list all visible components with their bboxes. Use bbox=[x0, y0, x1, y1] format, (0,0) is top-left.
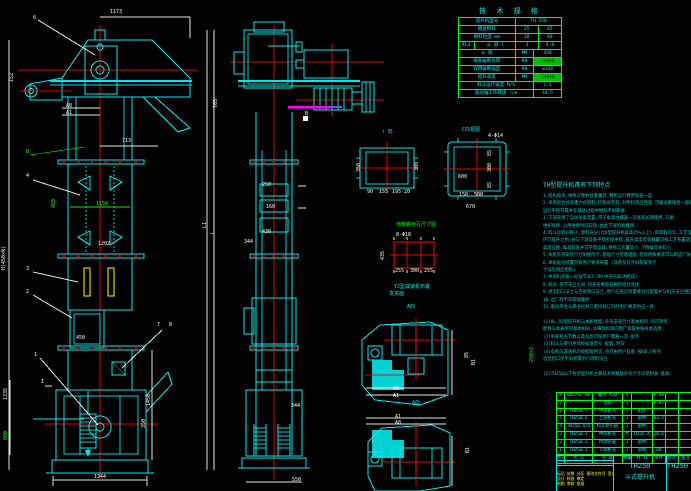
parts-table-cell bbox=[665, 393, 678, 400]
dimension-label: 430 bbox=[262, 230, 271, 235]
parts-table-cell bbox=[665, 409, 678, 416]
notes-line: 5.本机外形安装尺寸如图所示,基础尺寸见基础图,若有特殊要求可与制造厂协商订货 bbox=[543, 252, 691, 259]
parts-table-cell bbox=[678, 432, 691, 439]
dimension-label: B1 bbox=[466, 447, 471, 453]
parts-table-row: 1TH250.1下部机壳1部件88 bbox=[557, 447, 691, 455]
parts-table-cell: 7 bbox=[557, 401, 564, 408]
parts-table-cell: 下部机壳 bbox=[592, 448, 622, 455]
parts-table-cell: 1 bbox=[622, 401, 631, 408]
notes-line: 7.中部机壳每一标准节长2.5M(中部壳高3M组成) bbox=[543, 274, 691, 281]
dimension-label: 550 bbox=[292, 478, 301, 483]
title-block-revisions: 标记 处数 分区 更改文件号 签名 日期 设计 校核 审定 制图 审核 批准 bbox=[557, 456, 614, 491]
spec-table-cell: 驱动轴工作转速 r/m bbox=[459, 90, 533, 97]
dimension-label: 4-Φ14 bbox=[488, 134, 503, 139]
dimension-label: 765 bbox=[214, 99, 219, 108]
notes-block: TH型提升机具有下列特点 1.结构简单,维修方便并且重量轻,整机运行费用较低一些… bbox=[543, 180, 691, 378]
dimension-label: 344 bbox=[244, 240, 253, 245]
spec-table-cell: 450 bbox=[533, 50, 561, 57]
spec-table-cell: 提升高度 bbox=[459, 74, 515, 81]
parts-table-cell: 垫圈 bbox=[592, 401, 622, 408]
dimension-label: 344 bbox=[291, 404, 300, 409]
parts-table-cell bbox=[631, 401, 652, 408]
dimension-label: 300 bbox=[415, 162, 420, 171]
parts-table-cell: 中部机壳 bbox=[592, 409, 622, 416]
spec-table-cell: 链条破断负荷 bbox=[459, 58, 515, 65]
parts-table-row: 5TH250.6上部机壳1部件83.5 bbox=[557, 415, 691, 423]
parts-table-cell: TH250.3 bbox=[564, 432, 592, 439]
parts-table-row: 6TH250.7中部机壳1组焊 bbox=[557, 408, 691, 416]
dimension-label: 7 bbox=[157, 323, 160, 328]
spec-table-row: 许用破断强度KN≥320 bbox=[459, 65, 561, 73]
spec-table-cell: MM bbox=[515, 74, 534, 81]
parts-table-cell: 1 bbox=[622, 448, 631, 455]
dimension-label: 8 bbox=[169, 323, 172, 328]
parts-table-cell bbox=[631, 393, 652, 400]
spec-table-cell: ≥320 bbox=[533, 66, 561, 73]
parts-table-cell: 5 bbox=[557, 416, 564, 423]
spec-table-cell: 1.2 bbox=[533, 82, 561, 89]
parts-table-cell: 上部机壳 bbox=[592, 416, 622, 423]
parts-list-table: 8GB5782-86螺栓 M2040.087垫圈10.056TH250.7中部机… bbox=[556, 392, 691, 464]
parts-table-cell: 1 bbox=[557, 448, 564, 455]
spec-table-cell: 斗 容 l bbox=[474, 42, 515, 49]
parts-table-cell: 88 bbox=[652, 448, 665, 455]
dimension-label: 155 bbox=[379, 190, 388, 195]
drawing-model: TH250 bbox=[614, 462, 666, 470]
parts-table-cell bbox=[678, 416, 691, 423]
parts-table-cell: Q235-A bbox=[631, 432, 652, 439]
parts-table-cell: TH250.2 bbox=[564, 440, 592, 447]
spec-table-cell: 物料粒度 mm bbox=[459, 34, 515, 41]
parts-table-cell: TH250.6 bbox=[564, 416, 592, 423]
dimension-label: 600 bbox=[458, 175, 467, 180]
dimension-label: 255 bbox=[395, 269, 404, 274]
parts-table-cell bbox=[665, 416, 678, 423]
parts-table-cell: 0.05 bbox=[652, 401, 665, 408]
spec-table-row: 驱动轴工作转速 r/m44.5 bbox=[459, 89, 561, 97]
cad-drawing-screenshot: 技 术 规 格 提升机型号TH 250输送物料2545物料粒度 mm3040料斗… bbox=[0, 0, 691, 491]
dimension-label: 1202 bbox=[98, 242, 110, 247]
parts-table-cell bbox=[665, 440, 678, 447]
notes-line: (1)HL,DZ型提升机与本机性能,外形安装尺寸基本相同 均可参考, bbox=[543, 319, 691, 326]
notes-line: 寸详见相应图纸) bbox=[543, 267, 691, 274]
dimension-label: 350 bbox=[142, 419, 147, 428]
dimension-label: A8 bbox=[393, 387, 399, 392]
spec-table-cell: 25000 bbox=[533, 58, 561, 65]
parts-table-cell bbox=[678, 440, 691, 447]
parts-table-cell: 0.08 bbox=[652, 393, 665, 400]
spec-table-cell: 25 bbox=[515, 26, 538, 33]
dimension-label: 85 bbox=[488, 150, 493, 156]
parts-table-cell: 部件 bbox=[631, 424, 652, 431]
parts-table-cell bbox=[652, 409, 665, 416]
side-casing bbox=[244, 112, 298, 455]
notes-line: 3.下部采用了自动张紧装置,带子张紧由螺旋一次张紧长期使用,方便 bbox=[543, 215, 691, 222]
parts-table-cell: 部件 bbox=[631, 448, 652, 455]
dimension-label: 1173 bbox=[110, 10, 122, 15]
parts-table-cell: 4 bbox=[622, 393, 631, 400]
parts-table-cell: TH250.1 bbox=[564, 448, 592, 455]
spec-table-title: 技 术 规 格 bbox=[458, 6, 562, 16]
notes-line: 11.驱动平台与梯子栏杆二者均按订货时用户要求供应一并 bbox=[543, 304, 691, 311]
notes-line: 2.采用混合式或重力式卸料,挖取式装料,对物料适应性强 可输送磨琢性一般的物料, bbox=[543, 200, 691, 207]
side-head-drive bbox=[234, 22, 374, 112]
dimension-label: 4 bbox=[26, 174, 29, 179]
dimension-label: B1 bbox=[472, 359, 477, 365]
dimension-label: 1450 bbox=[147, 394, 152, 406]
parts-table-cell bbox=[665, 401, 678, 408]
dimension-label: 2 bbox=[26, 290, 29, 295]
parts-table-cell bbox=[564, 401, 592, 408]
dimension-label: 20 bbox=[404, 190, 410, 195]
spec-table-row: 斗 距MM450 bbox=[459, 49, 561, 57]
dimension-label: 713 bbox=[122, 139, 131, 144]
spec-table-cell: 40 bbox=[538, 34, 561, 41]
parts-table-cell: M bbox=[622, 432, 631, 439]
dimension-label: 发货面 bbox=[389, 292, 404, 297]
dimension-label: A8 bbox=[395, 421, 401, 426]
dimension-label: 500 bbox=[474, 193, 483, 198]
dimension-label: C向视图 bbox=[462, 128, 480, 133]
parts-table-cell: 3 bbox=[557, 432, 564, 439]
dimension-label: 1335 bbox=[4, 388, 9, 400]
dimension-label: B bbox=[26, 150, 29, 155]
spec-table-cell: TH 250 bbox=[515, 18, 561, 25]
detail-section-I bbox=[356, 142, 418, 194]
spec-table-row: 料斗运行速度 M/S1.2 bbox=[459, 81, 561, 89]
parts-table-cell: TH250.7 bbox=[564, 409, 592, 416]
spec-table-row: 提升机型号TH 250 bbox=[459, 18, 561, 25]
title-block-code: TH250 bbox=[667, 456, 691, 491]
title-block-grid bbox=[557, 456, 613, 470]
parts-table-cell: 料斗牵引链 bbox=[592, 424, 622, 431]
spec-table-row: 提升高度MM14040 bbox=[459, 73, 561, 81]
parts-table-cell bbox=[665, 448, 678, 455]
parts-table-cell: 1 bbox=[622, 409, 631, 416]
detail-section-C bbox=[444, 138, 510, 200]
parts-table-row: 3TH250.3中间机壳MQ235-A20.6 bbox=[557, 431, 691, 439]
parts-table-cell bbox=[678, 401, 691, 408]
parts-table-row: 7垫圈10.05 bbox=[557, 400, 691, 408]
parts-table-cell bbox=[665, 432, 678, 439]
parts-table-cell: 部件 bbox=[631, 440, 652, 447]
dimension-label: 300 bbox=[410, 269, 419, 274]
drawing-code: TH250 bbox=[667, 462, 691, 470]
dimension-label: 450 bbox=[52, 199, 57, 208]
dimension-label: 1344 bbox=[94, 475, 106, 480]
spec-table-cell: 料斗运行速度 M/S bbox=[459, 82, 533, 89]
dimension-label: 1 bbox=[34, 353, 37, 358]
sign-row-2: 制图 审核 批准 bbox=[557, 481, 613, 486]
dimension-label: 250 bbox=[262, 183, 271, 188]
dimension-label: L bbox=[211, 231, 216, 234]
dimension-label: H(450×N) bbox=[2, 246, 7, 270]
dimension-label: 地脚螺栓孔尺寸图 bbox=[396, 223, 436, 228]
dimension-label: 350 bbox=[357, 163, 362, 172]
dimension-label: L1 bbox=[203, 222, 208, 228]
spec-table-cell: 4.8 bbox=[538, 42, 561, 49]
spec-table-cell: 44.5 bbox=[533, 90, 561, 97]
notes-line: 8.机壳 各节法兰之间 均夹有橡胶石棉垫密封连接 bbox=[543, 282, 691, 289]
notes-line bbox=[543, 312, 691, 319]
notes-line: 10.出厂时不带基础螺栓 bbox=[543, 297, 691, 304]
spec-table-cell: 输送物料 bbox=[459, 26, 515, 33]
spec-table-row: 链条破断负荷KN25000 bbox=[459, 57, 561, 65]
notes-line: 高适应性,噪音较低并可平稳运转,维修工作量较小 下降噪音亦较小 bbox=[543, 245, 691, 252]
parts-table-cell: 1 bbox=[622, 416, 631, 423]
spec-table-cell: 14040 bbox=[533, 74, 561, 81]
parts-table-cell: 6 bbox=[557, 409, 564, 416]
dimension-label: 300 bbox=[488, 163, 493, 172]
parts-table-cell: 1 bbox=[622, 440, 631, 447]
spec-table-cell: 许用破断强度 bbox=[459, 66, 515, 73]
parts-table-row: 2TH250.2传动装置1部件 bbox=[557, 439, 691, 447]
dimension-label: A1 bbox=[393, 394, 399, 399]
dimension-label: 800 bbox=[4, 431, 9, 440]
dimension-label: 450 bbox=[76, 336, 85, 341]
parts-table-row: 4TH250.4/5料斗牵引链1部件 bbox=[557, 423, 691, 431]
parts-table-cell: 螺栓 M20 bbox=[592, 393, 622, 400]
notes-header: TH型提升机具有下列特点 bbox=[543, 180, 691, 189]
notes-line: 1.结构简单,维修方便并且重量轻,整机运行费用较低一些 bbox=[543, 193, 691, 200]
dimension-label: 85 bbox=[465, 352, 470, 358]
notes-line: (2)中部机壳节数以及总高可按用户需要一次-配齐 bbox=[543, 334, 691, 341]
dimension-label: A1 bbox=[66, 111, 72, 116]
dimension-label: 435 bbox=[381, 251, 386, 260]
spec-table: 技 术 规 格 提升机型号TH 250输送物料2545物料粒度 mm3040料斗… bbox=[458, 6, 562, 98]
notes-line: 9.进出料口法兰与连接管口法兰,用户应按实际需要另行配置并与机壳法兰相匹配连接 bbox=[543, 289, 691, 296]
spec-table-grid: 提升机型号TH 250输送物料2545物料粒度 mm3040料斗斗 容 l34.… bbox=[458, 17, 562, 98]
dimension-label: 8-Φ18 bbox=[396, 233, 411, 238]
notes-line: 环节提升之用,并与下游设备平稳衔接中转,提升高度及装载量可按工艺布置选择有较 bbox=[543, 237, 691, 244]
spec-table-row: 料斗斗 容 l34.8 bbox=[459, 41, 561, 49]
parts-table-cell bbox=[678, 409, 691, 416]
dimension-label: 150 bbox=[459, 193, 468, 198]
parts-table-cell: 1 bbox=[622, 424, 631, 431]
parts-table-cell bbox=[652, 440, 665, 447]
spec-table-cell: 3 bbox=[515, 42, 538, 49]
spec-table-cell: 料斗 bbox=[459, 42, 474, 49]
head-assembly bbox=[20, 30, 192, 132]
dimension-label: A向 bbox=[412, 401, 420, 406]
dimension-label: 670 bbox=[466, 205, 475, 210]
notes-line: (3)料斗与牵引件均按标准型号 配套 供货 bbox=[543, 341, 691, 348]
dimension-label: B bbox=[305, 112, 308, 117]
dimension-label: 6 bbox=[33, 16, 36, 21]
dimension-label: Ⅰ 向 bbox=[383, 130, 393, 135]
flange-bolt-marks bbox=[62, 160, 296, 350]
notes-line: 运行平稳可靠并在输送过程中物料不易撒漏 bbox=[543, 208, 691, 215]
notes-lines: 1.结构简单,维修方便并且重量轻,整机运行费用较低一些2.采用混合式或重力式卸料… bbox=[543, 193, 691, 378]
parts-table-cell: TH250.4/5 bbox=[564, 424, 592, 431]
notes-line: (5)TH250以下各型提升机主要技术参数及外形尺寸详见附表 备索. bbox=[543, 371, 691, 378]
parts-table-cell: 传动装置 bbox=[592, 440, 622, 447]
spec-table-row: 输送物料2545 bbox=[459, 25, 561, 33]
dimension-label: 85 bbox=[488, 182, 493, 188]
title-block: 标记 处数 分区 更改文件号 签名 日期 设计 校核 审定 制图 审核 批准 T… bbox=[556, 455, 691, 491]
detail-drive-platform-A bbox=[362, 318, 455, 405]
spec-table-cell: KN bbox=[515, 58, 534, 65]
notes-line: 配件与本表所列基本相同,详细资料请向我厂索取并按样本选用: bbox=[543, 326, 691, 333]
spec-table-cell: MM bbox=[515, 50, 534, 57]
dimension-label: A8 bbox=[66, 104, 72, 109]
detail-drive-platform-B bbox=[366, 418, 455, 491]
parts-table-cell: 8 bbox=[557, 393, 564, 400]
dimension-label: A向 bbox=[407, 305, 415, 310]
parts-table-cell: GB5782-86 bbox=[564, 393, 592, 400]
drawing-product-name: 斗式提升机 bbox=[614, 472, 666, 481]
parts-table-cell bbox=[678, 424, 691, 431]
notes-line: 维护保养,占用维修时间较短,由此节省检修费用 bbox=[543, 223, 691, 230]
notes-line: 4.料斗运转间隙小,卸料充分(比D型提升机提高25%以上),装卸料均匀,工艺流程… bbox=[543, 230, 691, 237]
parts-table-cell bbox=[678, 393, 691, 400]
notes-line: 6.本机驱动装置可按用户要求布置 (其余型号外形及安装尺 bbox=[543, 260, 691, 267]
parts-table-cell: 83.5 bbox=[652, 416, 665, 423]
notes-line: (4)电机与减速机均按配套供货,也可由用户自备 按GB,Y系列 bbox=[543, 349, 691, 356]
notes-line: 选型后口径不同者需另行改制法兰 bbox=[543, 356, 691, 363]
spec-table-cell: 30 bbox=[515, 34, 538, 41]
side-view bbox=[207, 22, 384, 482]
dimension-label: 1150 bbox=[96, 202, 108, 207]
dimension-label: 3 bbox=[26, 267, 29, 272]
spec-table-cell: 提升机型号 bbox=[459, 18, 515, 25]
parts-table-cell: 4 bbox=[557, 424, 564, 431]
parts-table-cell: 20.6 bbox=[652, 432, 665, 439]
parts-table-row: 8GB5782-86螺栓 M2040.08 bbox=[557, 393, 691, 400]
parts-table-cell: 部件 bbox=[631, 416, 652, 423]
parts-table-cell bbox=[665, 424, 678, 431]
dimension-label: 255 bbox=[424, 269, 433, 274]
spec-table-cell: 45 bbox=[538, 26, 561, 33]
parts-table-cell bbox=[678, 448, 691, 455]
title-block-product: TH250 斗式提升机 bbox=[614, 456, 667, 491]
dimension-label: 250×2 bbox=[530, 347, 535, 362]
spec-table-row: 物料粒度 mm3040 bbox=[459, 33, 561, 41]
dimension-label: YJ型减速机布置 bbox=[394, 285, 430, 290]
parts-table-cell: 2 bbox=[557, 440, 564, 447]
spec-table-cell: 斗 距 bbox=[459, 50, 515, 57]
main-elevation-view bbox=[9, 17, 198, 486]
dimension-label: 90 bbox=[367, 190, 373, 195]
parts-table-cell: 组焊 bbox=[631, 409, 652, 416]
spec-table-cell: KN bbox=[515, 66, 534, 73]
notes-line bbox=[543, 363, 691, 370]
dimension-label: 160 bbox=[266, 205, 275, 210]
dimension-label: 152 bbox=[10, 73, 15, 82]
dimension-label: I bbox=[41, 380, 44, 385]
parts-table-cell: 中间机壳 bbox=[592, 432, 622, 439]
parts-table-cell bbox=[652, 424, 665, 431]
dimension-label: 195 bbox=[392, 190, 401, 195]
